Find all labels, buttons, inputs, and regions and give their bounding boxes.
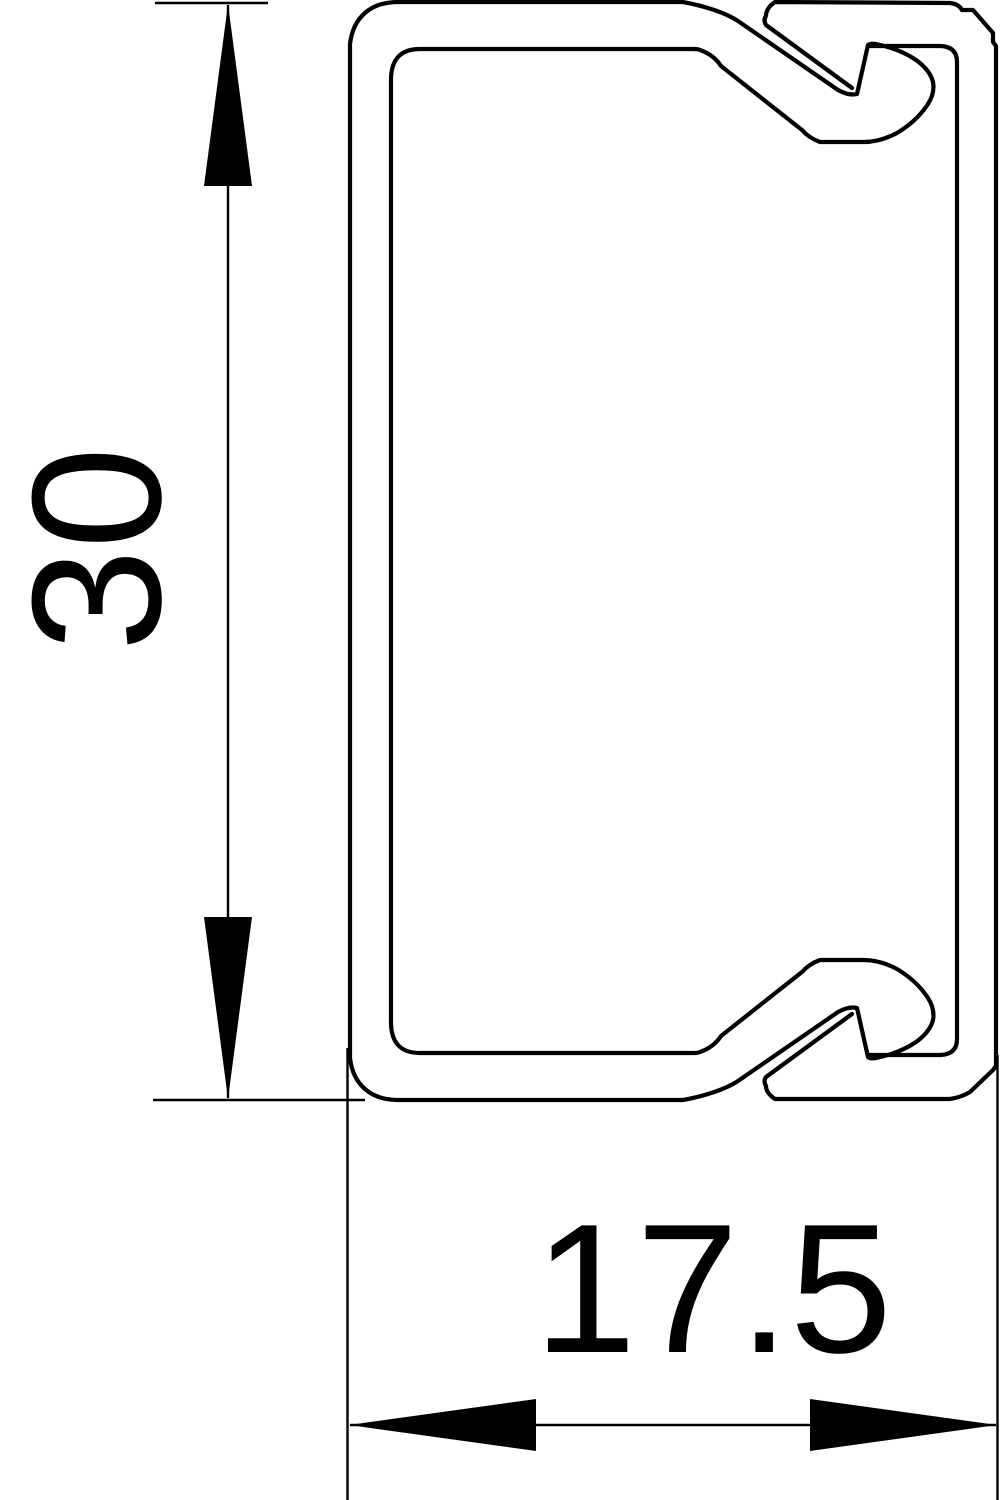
trunking-cross-section-drawing: 30 17.5	[0, 0, 1002, 1500]
width-arrow-right-icon	[810, 1399, 997, 1451]
width-arrow-left-icon	[349, 1399, 536, 1451]
cover-outline	[765, 2, 997, 1099]
technical-drawing-canvas: 30 17.5	[0, 0, 1002, 1500]
height-dimension-label: 30	[0, 447, 199, 652]
cover-inner-face-outline	[868, 46, 957, 1055]
width-dimension-label: 17.5	[534, 1185, 892, 1391]
height-arrow-up-icon	[204, 4, 252, 186]
duct-body-outline	[350, 2, 933, 1100]
height-arrow-down-icon	[204, 917, 252, 1099]
